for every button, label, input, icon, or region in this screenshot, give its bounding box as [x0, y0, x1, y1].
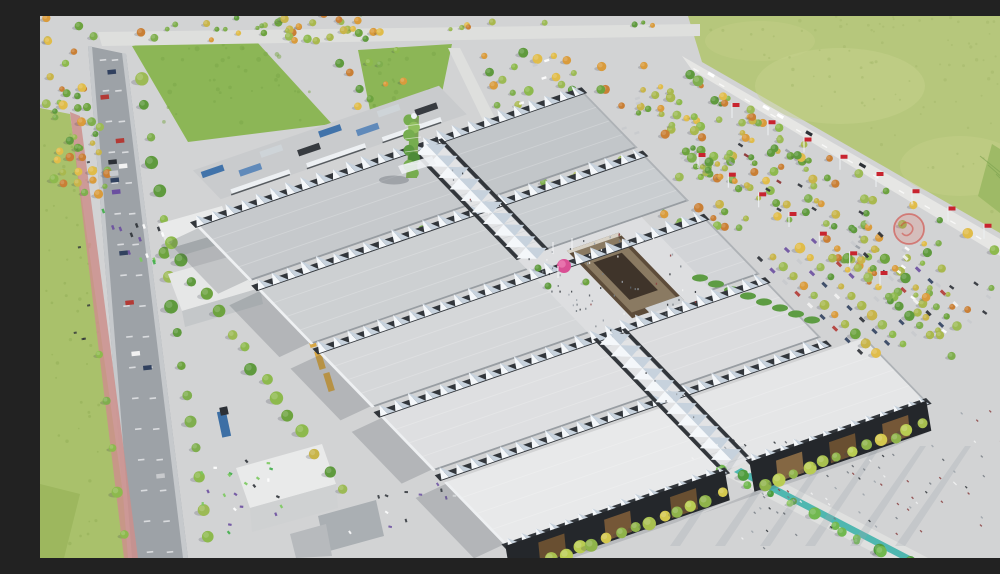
- aerial-rendering: [40, 16, 1000, 558]
- scene-canvas: [40, 16, 1000, 558]
- red-logo-marker: [894, 214, 924, 244]
